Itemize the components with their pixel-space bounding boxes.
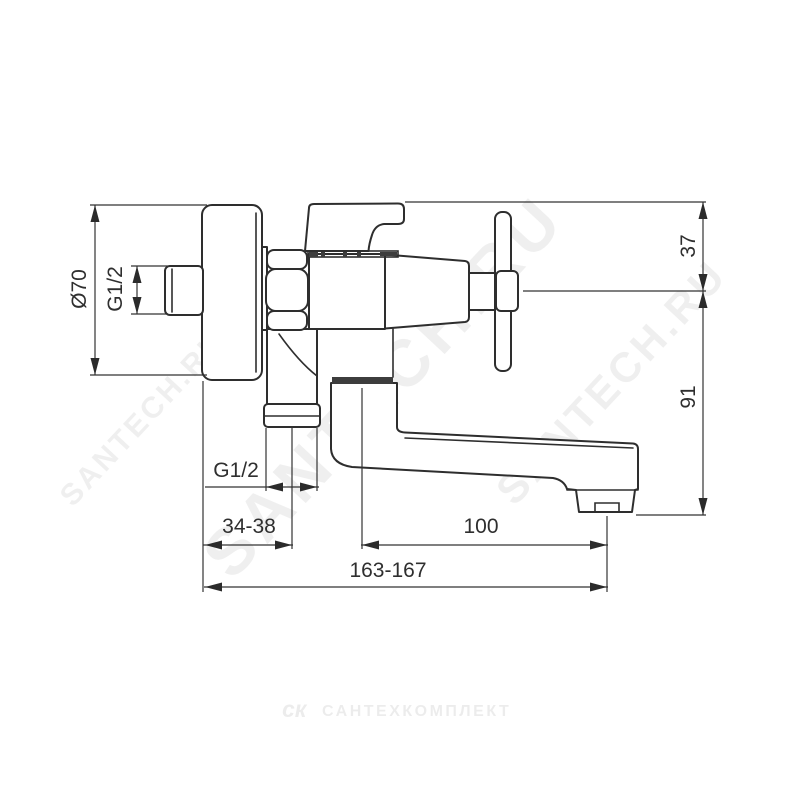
dim-label-diameter: Ø70: [68, 269, 91, 309]
arrowhead: [699, 202, 708, 219]
arrowhead: [91, 205, 100, 222]
dim-label-wall-distance: 34-38: [222, 515, 276, 538]
dim-label-body-height: 91: [677, 385, 700, 408]
dim-label-outlet-reach: 100: [463, 515, 498, 538]
valve-taper: [385, 255, 469, 329]
faucet-dimension-drawing: SANTECH.RU SANTECH.RU SANTECH.RU: [0, 0, 800, 800]
footer-logo-mark: ск: [282, 696, 308, 722]
dim-label-shower-thread: G1/2: [213, 459, 259, 482]
footer-watermark: ск САНТЕХКОМПЛЕКТ: [282, 696, 511, 722]
collar-tick: [380, 252, 397, 256]
footer-watermark-text: САНТЕХКОМПЛЕКТ: [322, 703, 511, 720]
dim-label-total-reach: 163-167: [349, 559, 426, 582]
collar-tick: [357, 252, 361, 257]
collar-tick: [343, 252, 347, 257]
under-body-block: [313, 329, 393, 378]
hex-nut-middle-facet: [266, 269, 308, 311]
dim-label-handle-offset: 37: [677, 234, 700, 257]
arrowhead: [362, 541, 379, 550]
dim-label-inlet-thread: G1/2: [104, 266, 127, 312]
technical-drawing-page: SANTECH.RU SANTECH.RU SANTECH.RU: [0, 0, 800, 800]
arrowhead: [133, 297, 142, 314]
mixer-body: [309, 254, 385, 329]
arrowhead: [590, 541, 607, 550]
arrowhead: [699, 498, 708, 515]
hex-nut-bottom-facet: [267, 311, 307, 330]
collar-tick: [321, 252, 325, 257]
arrowhead: [91, 358, 100, 375]
cross-handle-hub: [496, 271, 518, 311]
hex-nut-top-facet: [267, 250, 307, 269]
wall-plate: [202, 205, 262, 380]
valve-stem: [469, 273, 496, 310]
inlet-thread-stub: [165, 266, 203, 315]
arrowhead: [205, 583, 222, 592]
lever-handle: [305, 204, 404, 252]
body-shadow-band: [332, 377, 393, 384]
arrowhead: [133, 266, 142, 283]
shower-outlet-pipe: [267, 329, 317, 404]
arrowhead: [590, 583, 607, 592]
